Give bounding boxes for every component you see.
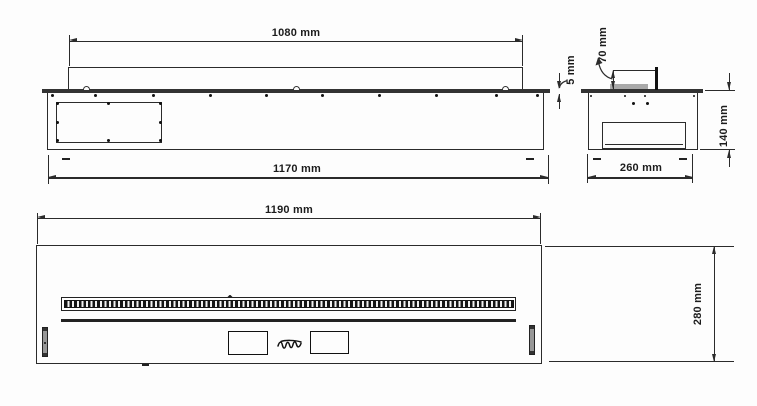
burner-strip-perforation (64, 300, 514, 308)
panel-screw-dot (159, 121, 162, 124)
arrowhead-icon (540, 175, 548, 179)
side-vent-slot (529, 325, 535, 355)
arrowhead-icon (557, 94, 561, 102)
control-box (310, 331, 349, 354)
panel-screw-dot (56, 121, 59, 124)
arrowhead-icon (588, 175, 596, 179)
dim-label-fascia-width: 1190 mm (265, 204, 313, 216)
control-box (228, 331, 268, 355)
flange-clip-icon (502, 86, 509, 90)
foot-mark (62, 158, 70, 160)
bottom-notch-mark (142, 364, 149, 366)
panel-screw-dot (159, 102, 162, 105)
arrowhead-icon (557, 81, 561, 89)
arrowhead-icon (69, 38, 77, 42)
extension-line (548, 155, 549, 184)
dim-label-body-height: 140 mm (718, 105, 730, 147)
dimension-line-280 (714, 246, 715, 362)
extension-line (705, 90, 735, 91)
front-groove-line (61, 319, 516, 322)
arrowhead-icon (37, 215, 45, 219)
arrowhead-icon (48, 175, 56, 179)
dim-label-flange-thickness: 5 mm (565, 55, 577, 85)
dimension-line-1080 (69, 41, 523, 42)
end-window-inner-line (605, 144, 683, 145)
foot-mark (593, 158, 601, 160)
dimension-line-260 (588, 177, 693, 178)
dim-label-fascia-height: 280 mm (692, 283, 704, 325)
technical-drawing-canvas: 1080 mm 1170 mm 70 mm 5 mm 140 mm 260 mm (0, 0, 757, 406)
extension-line (549, 361, 734, 362)
screw-dot (646, 102, 649, 105)
arrowhead-icon (712, 354, 716, 362)
dimension-line-1190 (37, 218, 541, 219)
flange-clip-icon (83, 86, 90, 90)
arrowhead-icon (727, 82, 731, 90)
dimension-line-1170 (48, 177, 548, 178)
arrowhead-icon (611, 70, 615, 78)
arrowhead-icon (515, 38, 523, 42)
dim-label-burner-slot: 70 mm (597, 27, 609, 63)
side-mounting-flange (42, 89, 550, 93)
dim-label-tray-width: 1080 mm (272, 27, 321, 39)
end-burner-tray-fill (610, 84, 648, 89)
side-access-panel (56, 102, 162, 143)
panel-screw-dot (159, 139, 162, 142)
extension-line (48, 155, 49, 184)
arrowhead-icon (712, 246, 716, 254)
panel-screw-dot (56, 102, 59, 105)
arrowhead-icon (685, 175, 693, 179)
dim-label-body-depth: 260 mm (620, 162, 662, 174)
extension-line (545, 246, 734, 247)
igniter-pin (655, 67, 659, 90)
arrowhead-icon (727, 150, 731, 158)
foot-mark (679, 158, 687, 160)
flange-clip-icon (293, 86, 300, 90)
foot-mark (526, 158, 534, 160)
end-tray-top-line (613, 70, 655, 71)
arrowhead-icon (533, 215, 541, 219)
arrowhead-icon (611, 81, 615, 89)
screw-dot (632, 102, 635, 105)
dim-label-body-width: 1170 mm (273, 163, 321, 175)
end-mounting-flange (581, 89, 703, 93)
